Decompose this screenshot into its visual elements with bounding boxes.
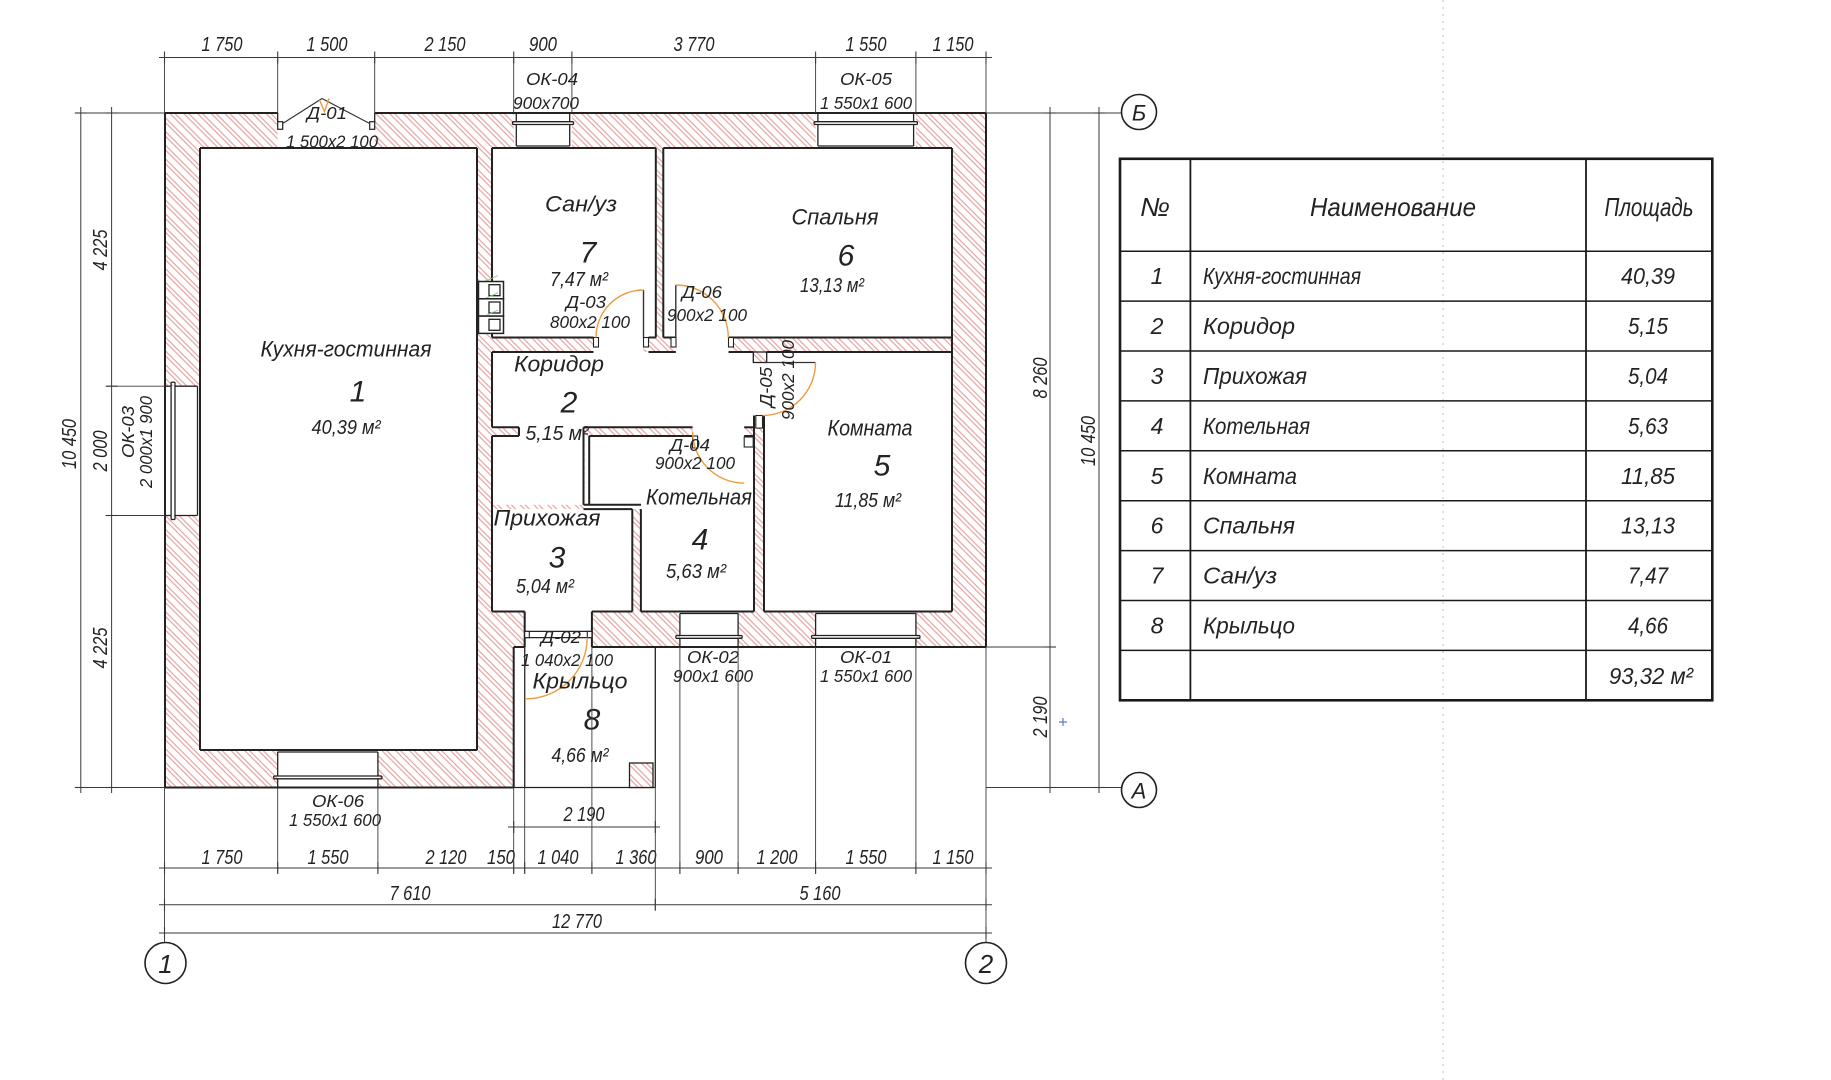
svg-text:Комната: Комната	[828, 416, 913, 441]
svg-text:5,63 м²: 5,63 м²	[666, 561, 727, 583]
svg-text:7,47 м²: 7,47 м²	[550, 269, 609, 291]
svg-text:Крыльцо: Крыльцо	[533, 669, 628, 694]
svg-text:8 260: 8 260	[1030, 358, 1052, 399]
svg-text:1: 1	[1151, 263, 1164, 289]
svg-text:40,39 м²: 40,39 м²	[312, 417, 382, 439]
svg-text:2: 2	[560, 387, 578, 420]
svg-text:Б: Б	[1132, 101, 1146, 126]
svg-text:Комната: Комната	[1203, 463, 1297, 489]
svg-text:1 550х1 600: 1 550х1 600	[820, 666, 912, 686]
svg-text:5,15: 5,15	[1628, 313, 1668, 339]
svg-text:900х2 100: 900х2 100	[778, 340, 798, 420]
svg-text:5 160: 5 160	[800, 883, 841, 905]
svg-text:1 500х2 100: 1 500х2 100	[286, 132, 378, 152]
svg-text:Д-03: Д-03	[564, 292, 606, 312]
svg-text:7 610: 7 610	[390, 883, 431, 905]
svg-text:ОК-05: ОК-05	[840, 69, 892, 89]
svg-text:1 150: 1 150	[933, 34, 974, 56]
svg-text:10 450: 10 450	[1078, 416, 1100, 466]
svg-text:4 225: 4 225	[90, 627, 112, 669]
svg-text:900х700: 900х700	[513, 93, 579, 113]
svg-text:Спальня: Спальня	[1203, 513, 1295, 539]
svg-text:3: 3	[549, 542, 566, 575]
svg-text:Д-01: Д-01	[305, 103, 347, 123]
svg-text:7: 7	[580, 237, 598, 270]
svg-text:Наименование: Наименование	[1310, 192, 1476, 222]
svg-text:900х2 100: 900х2 100	[655, 453, 735, 473]
svg-text:5,04 м²: 5,04 м²	[516, 576, 575, 598]
svg-text:1 550: 1 550	[846, 34, 887, 56]
svg-text:ОК-01: ОК-01	[840, 647, 892, 667]
svg-text:11,85: 11,85	[1621, 463, 1675, 489]
svg-text:12 770: 12 770	[552, 911, 602, 933]
svg-text:900: 900	[695, 847, 723, 869]
svg-text:Котельная: Котельная	[646, 485, 752, 510]
svg-text:1: 1	[158, 949, 172, 979]
svg-text:Коридор: Коридор	[514, 352, 604, 377]
svg-text:1 040х2 100: 1 040х2 100	[521, 650, 613, 670]
svg-text:2 190: 2 190	[563, 804, 605, 826]
svg-text:Крыльцо: Крыльцо	[1203, 612, 1295, 638]
svg-text:ОК-06: ОК-06	[312, 791, 364, 811]
svg-text:2 000х1 900: 2 000х1 900	[136, 396, 156, 489]
svg-text:Д-05: Д-05	[756, 367, 776, 409]
svg-text:10 450: 10 450	[59, 419, 81, 469]
svg-text:ОК-03: ОК-03	[118, 406, 138, 458]
svg-text:1 360: 1 360	[616, 847, 657, 869]
svg-text:2 190: 2 190	[1030, 697, 1052, 739]
svg-text:1 040: 1 040	[538, 847, 579, 869]
svg-text:40,39: 40,39	[1621, 263, 1675, 289]
svg-text:1 500: 1 500	[307, 34, 348, 56]
svg-text:1 550: 1 550	[308, 847, 349, 869]
svg-text:1 750: 1 750	[202, 847, 243, 869]
svg-text:8: 8	[1151, 612, 1164, 638]
svg-text:93,32 м²: 93,32 м²	[1609, 663, 1694, 689]
svg-text:7: 7	[1151, 563, 1165, 589]
svg-text:5,04: 5,04	[1628, 363, 1668, 389]
svg-text:3: 3	[1151, 363, 1164, 389]
svg-text:№: №	[1140, 192, 1170, 222]
svg-text:1 150: 1 150	[933, 847, 974, 869]
svg-text:Прихожая: Прихожая	[494, 506, 601, 531]
svg-text:1 750: 1 750	[202, 34, 243, 56]
svg-text:4: 4	[1151, 413, 1164, 439]
svg-text:2 000: 2 000	[90, 431, 112, 473]
svg-text:150: 150	[487, 847, 515, 869]
svg-text:900: 900	[529, 34, 557, 56]
svg-text:5: 5	[1151, 463, 1164, 489]
svg-text:2 120: 2 120	[425, 847, 467, 869]
svg-text:5: 5	[874, 450, 891, 483]
svg-text:900х2 100: 900х2 100	[667, 305, 747, 325]
svg-text:800х2 100: 800х2 100	[550, 312, 630, 332]
svg-text:Коридор: Коридор	[1203, 313, 1295, 339]
svg-text:900х1 600: 900х1 600	[673, 666, 753, 686]
svg-text:ОК-04: ОК-04	[526, 69, 578, 89]
svg-text:Сан/уз: Сан/уз	[545, 192, 617, 217]
svg-text:1 200: 1 200	[757, 847, 798, 869]
svg-text:4: 4	[692, 524, 709, 557]
svg-text:6: 6	[1151, 513, 1164, 539]
svg-text:7,47: 7,47	[1628, 563, 1669, 589]
svg-text:А: А	[1130, 779, 1147, 804]
svg-text:13,13 м²: 13,13 м²	[800, 275, 865, 297]
svg-text:5,63: 5,63	[1628, 413, 1668, 439]
svg-text:4,66 м²: 4,66 м²	[552, 745, 610, 767]
svg-text:Площадь: Площадь	[1605, 192, 1694, 222]
svg-text:Прихожая: Прихожая	[1203, 363, 1307, 389]
svg-text:Д-02: Д-02	[539, 627, 581, 647]
svg-text:Спальня: Спальня	[792, 205, 879, 230]
svg-text:11,85 м²: 11,85 м²	[835, 490, 902, 512]
svg-text:5,15 м²: 5,15 м²	[526, 423, 590, 445]
svg-text:Кухня-гостинная: Кухня-гостинная	[261, 337, 432, 362]
svg-text:2: 2	[1150, 313, 1164, 339]
svg-text:6: 6	[838, 240, 855, 273]
svg-text:2 150: 2 150	[424, 34, 466, 56]
svg-text:1 550х1 600: 1 550х1 600	[289, 810, 381, 830]
svg-text:1 550: 1 550	[846, 847, 887, 869]
svg-text:3 770: 3 770	[674, 34, 715, 56]
svg-text:1 550х1 600: 1 550х1 600	[820, 93, 912, 113]
svg-text:4 225: 4 225	[90, 229, 112, 271]
svg-text:Д-06: Д-06	[680, 282, 722, 302]
svg-text:Котельная: Котельная	[1203, 413, 1310, 439]
svg-text:2: 2	[978, 949, 994, 979]
svg-text:Кухня-гостинная: Кухня-гостинная	[1203, 263, 1361, 289]
svg-text:Д-04: Д-04	[668, 435, 710, 455]
svg-text:4,66: 4,66	[1628, 612, 1668, 638]
svg-text:1: 1	[350, 376, 367, 409]
svg-text:ОК-02: ОК-02	[687, 647, 739, 667]
svg-text:13,13: 13,13	[1621, 513, 1675, 539]
svg-text:Сан/уз: Сан/уз	[1203, 563, 1277, 589]
